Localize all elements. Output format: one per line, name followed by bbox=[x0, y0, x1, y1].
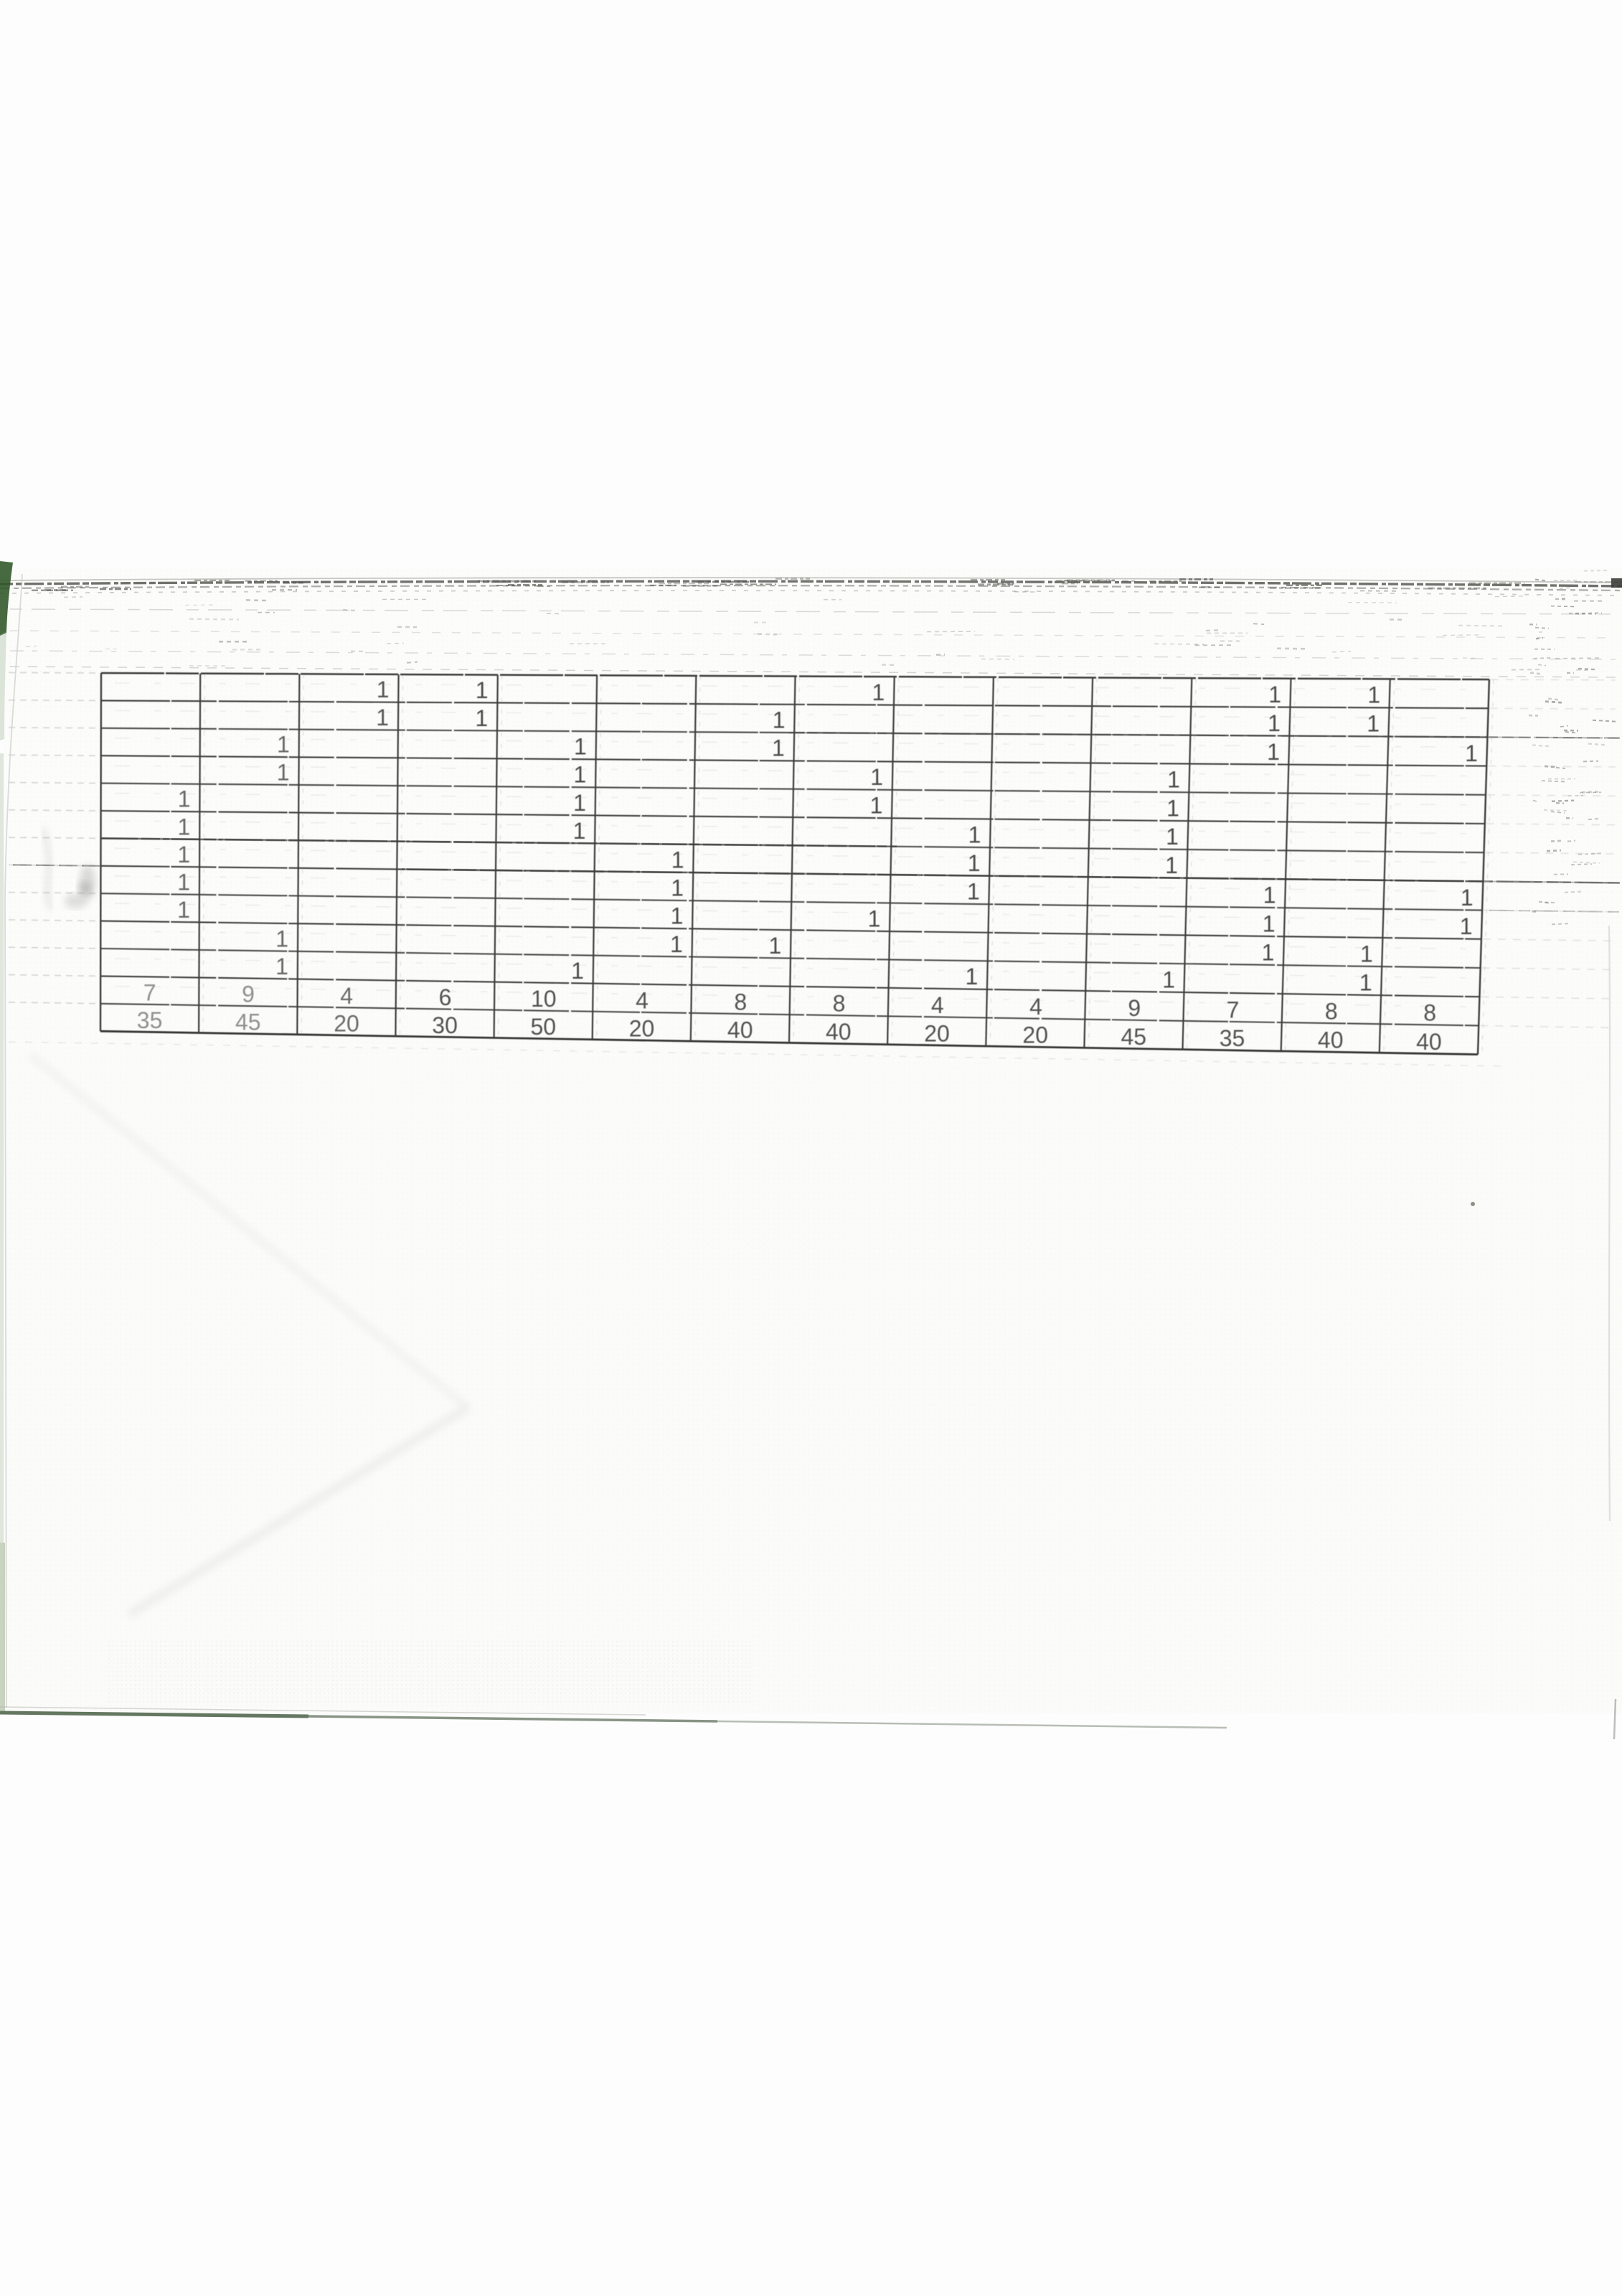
svg-text:1: 1 bbox=[177, 842, 190, 867]
svg-text:4: 4 bbox=[340, 983, 353, 1009]
svg-text:1: 1 bbox=[1167, 767, 1180, 793]
svg-text:1: 1 bbox=[574, 762, 587, 788]
svg-text:1: 1 bbox=[1268, 682, 1281, 707]
svg-text:1: 1 bbox=[1461, 885, 1474, 911]
svg-text:1: 1 bbox=[966, 964, 979, 989]
svg-text:1: 1 bbox=[968, 822, 981, 847]
svg-text:1: 1 bbox=[1166, 795, 1179, 821]
svg-text:4: 4 bbox=[931, 992, 944, 1018]
svg-text:20: 20 bbox=[1022, 1022, 1048, 1048]
svg-text:1: 1 bbox=[671, 847, 684, 872]
svg-text:8: 8 bbox=[1325, 999, 1338, 1025]
svg-text:1: 1 bbox=[1359, 969, 1372, 995]
svg-text:1: 1 bbox=[671, 875, 684, 901]
svg-text:1: 1 bbox=[967, 879, 980, 905]
svg-text:1: 1 bbox=[1460, 913, 1473, 939]
svg-text:1: 1 bbox=[1263, 911, 1276, 936]
svg-text:1: 1 bbox=[1162, 966, 1175, 992]
svg-text:1: 1 bbox=[868, 905, 881, 931]
svg-text:1: 1 bbox=[475, 705, 488, 731]
svg-text:1: 1 bbox=[1367, 711, 1380, 737]
svg-text:20: 20 bbox=[924, 1020, 950, 1046]
svg-text:35: 35 bbox=[1220, 1025, 1245, 1051]
svg-text:1: 1 bbox=[275, 926, 288, 951]
svg-text:1: 1 bbox=[870, 793, 883, 819]
svg-text:8: 8 bbox=[1423, 1000, 1436, 1026]
svg-text:8: 8 bbox=[734, 989, 747, 1015]
svg-text:1: 1 bbox=[1360, 941, 1373, 966]
svg-text:9: 9 bbox=[1128, 995, 1141, 1021]
svg-text:40: 40 bbox=[1318, 1027, 1344, 1053]
svg-text:1: 1 bbox=[177, 869, 190, 895]
svg-text:1: 1 bbox=[1263, 883, 1276, 908]
svg-text:1: 1 bbox=[1367, 682, 1380, 708]
svg-text:1: 1 bbox=[476, 677, 489, 703]
svg-text:1: 1 bbox=[573, 790, 586, 816]
svg-text:1: 1 bbox=[870, 764, 883, 790]
svg-text:20: 20 bbox=[629, 1016, 655, 1042]
svg-text:1: 1 bbox=[1268, 710, 1281, 736]
svg-text:1: 1 bbox=[670, 931, 683, 957]
svg-text:35: 35 bbox=[137, 1007, 163, 1033]
svg-text:1: 1 bbox=[574, 734, 587, 760]
svg-text:1: 1 bbox=[277, 732, 290, 758]
svg-text:40: 40 bbox=[1416, 1029, 1442, 1055]
svg-text:1: 1 bbox=[1465, 740, 1478, 766]
svg-text:10: 10 bbox=[531, 986, 557, 1012]
svg-text:1: 1 bbox=[769, 933, 782, 959]
svg-text:7: 7 bbox=[1227, 997, 1240, 1022]
svg-text:1: 1 bbox=[772, 735, 785, 761]
svg-text:1: 1 bbox=[377, 677, 390, 702]
svg-text:7: 7 bbox=[143, 980, 156, 1006]
svg-text:9: 9 bbox=[242, 982, 255, 1007]
svg-text:1: 1 bbox=[277, 759, 290, 785]
svg-text:1: 1 bbox=[1166, 824, 1179, 850]
svg-text:6: 6 bbox=[439, 984, 452, 1010]
svg-text:1: 1 bbox=[275, 954, 288, 979]
svg-text:40: 40 bbox=[727, 1017, 753, 1043]
svg-text:1: 1 bbox=[177, 897, 190, 923]
svg-text:45: 45 bbox=[1121, 1024, 1147, 1050]
svg-text:1: 1 bbox=[571, 958, 584, 984]
svg-text:50: 50 bbox=[531, 1014, 557, 1040]
svg-text:1: 1 bbox=[968, 850, 981, 876]
svg-text:1: 1 bbox=[573, 818, 586, 844]
svg-text:1: 1 bbox=[178, 786, 191, 812]
svg-text:4: 4 bbox=[636, 987, 649, 1013]
svg-text:40: 40 bbox=[826, 1019, 852, 1045]
svg-text:1: 1 bbox=[1262, 939, 1275, 965]
svg-text:1: 1 bbox=[773, 707, 786, 733]
svg-text:20: 20 bbox=[334, 1011, 359, 1037]
svg-text:8: 8 bbox=[833, 991, 846, 1017]
svg-text:4: 4 bbox=[1029, 994, 1042, 1020]
svg-text:1: 1 bbox=[1267, 739, 1280, 765]
svg-text:30: 30 bbox=[432, 1012, 458, 1038]
svg-text:1: 1 bbox=[671, 903, 684, 929]
svg-text:1: 1 bbox=[872, 679, 885, 705]
svg-text:45: 45 bbox=[235, 1009, 261, 1035]
svg-text:1: 1 bbox=[376, 705, 389, 730]
svg-text:1: 1 bbox=[178, 814, 191, 839]
svg-text:1: 1 bbox=[1165, 852, 1178, 878]
